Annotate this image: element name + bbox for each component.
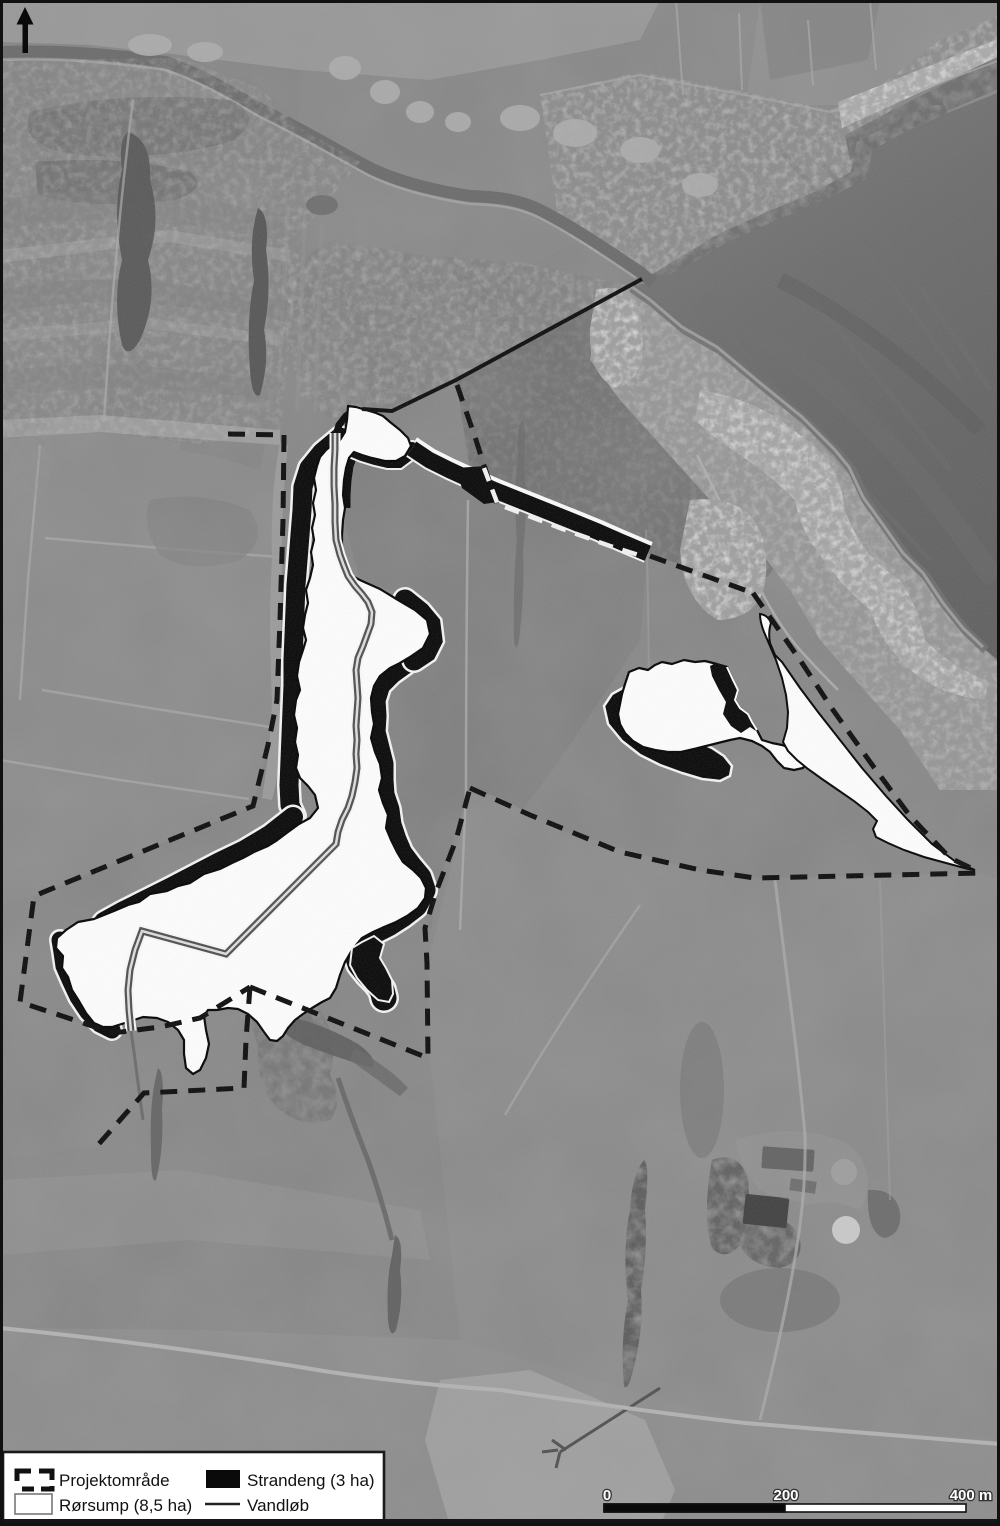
svg-text:200: 200 [773, 1487, 798, 1504]
svg-text:0: 0 [603, 1487, 611, 1504]
svg-text:400 m: 400 m [950, 1487, 993, 1504]
svg-text:Vandløb: Vandløb [247, 1496, 309, 1515]
svg-text:Strandeng (3 ha): Strandeng (3 ha) [247, 1471, 375, 1490]
svg-text:Projektområde: Projektområde [59, 1471, 170, 1490]
svg-text:Rørsump (8,5 ha): Rørsump (8,5 ha) [59, 1496, 192, 1515]
